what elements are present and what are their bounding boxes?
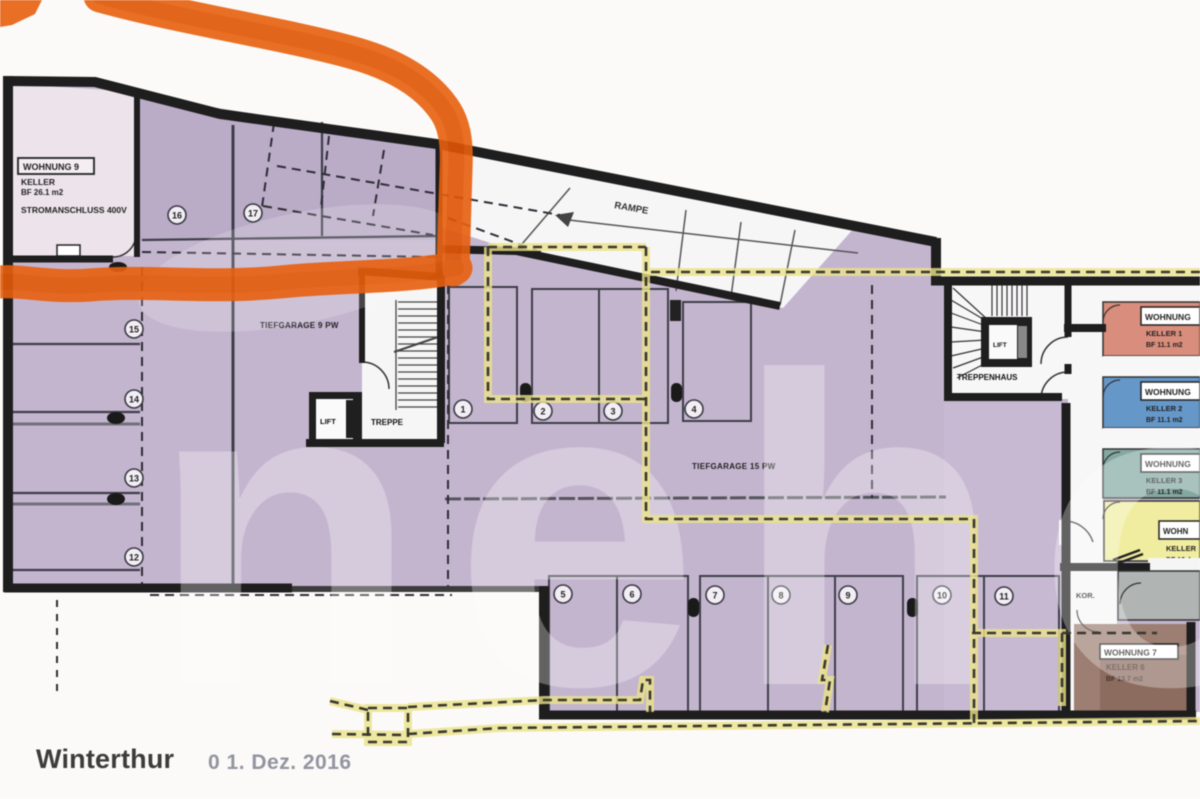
svg-text:12: 12 bbox=[129, 553, 139, 563]
svg-text:0 1. Dez. 2016: 0 1. Dez. 2016 bbox=[208, 751, 352, 774]
svg-text:17: 17 bbox=[248, 209, 258, 219]
svg-text:BF 26.1 m2: BF 26.1 m2 bbox=[21, 188, 64, 197]
svg-text:KELLER: KELLER bbox=[21, 177, 55, 187]
svg-text:neho: neho bbox=[150, 287, 1200, 778]
svg-text:WOHNUNG 9: WOHNUNG 9 bbox=[23, 162, 79, 172]
svg-text:STROMANSCHLUSS 400V: STROMANSCHLUSS 400V bbox=[21, 205, 127, 215]
svg-text:Winterthur: Winterthur bbox=[36, 744, 175, 774]
svg-text:15: 15 bbox=[129, 325, 139, 335]
svg-text:14: 14 bbox=[129, 395, 139, 405]
svg-text:16: 16 bbox=[172, 211, 182, 221]
svg-text:13: 13 bbox=[129, 474, 139, 484]
